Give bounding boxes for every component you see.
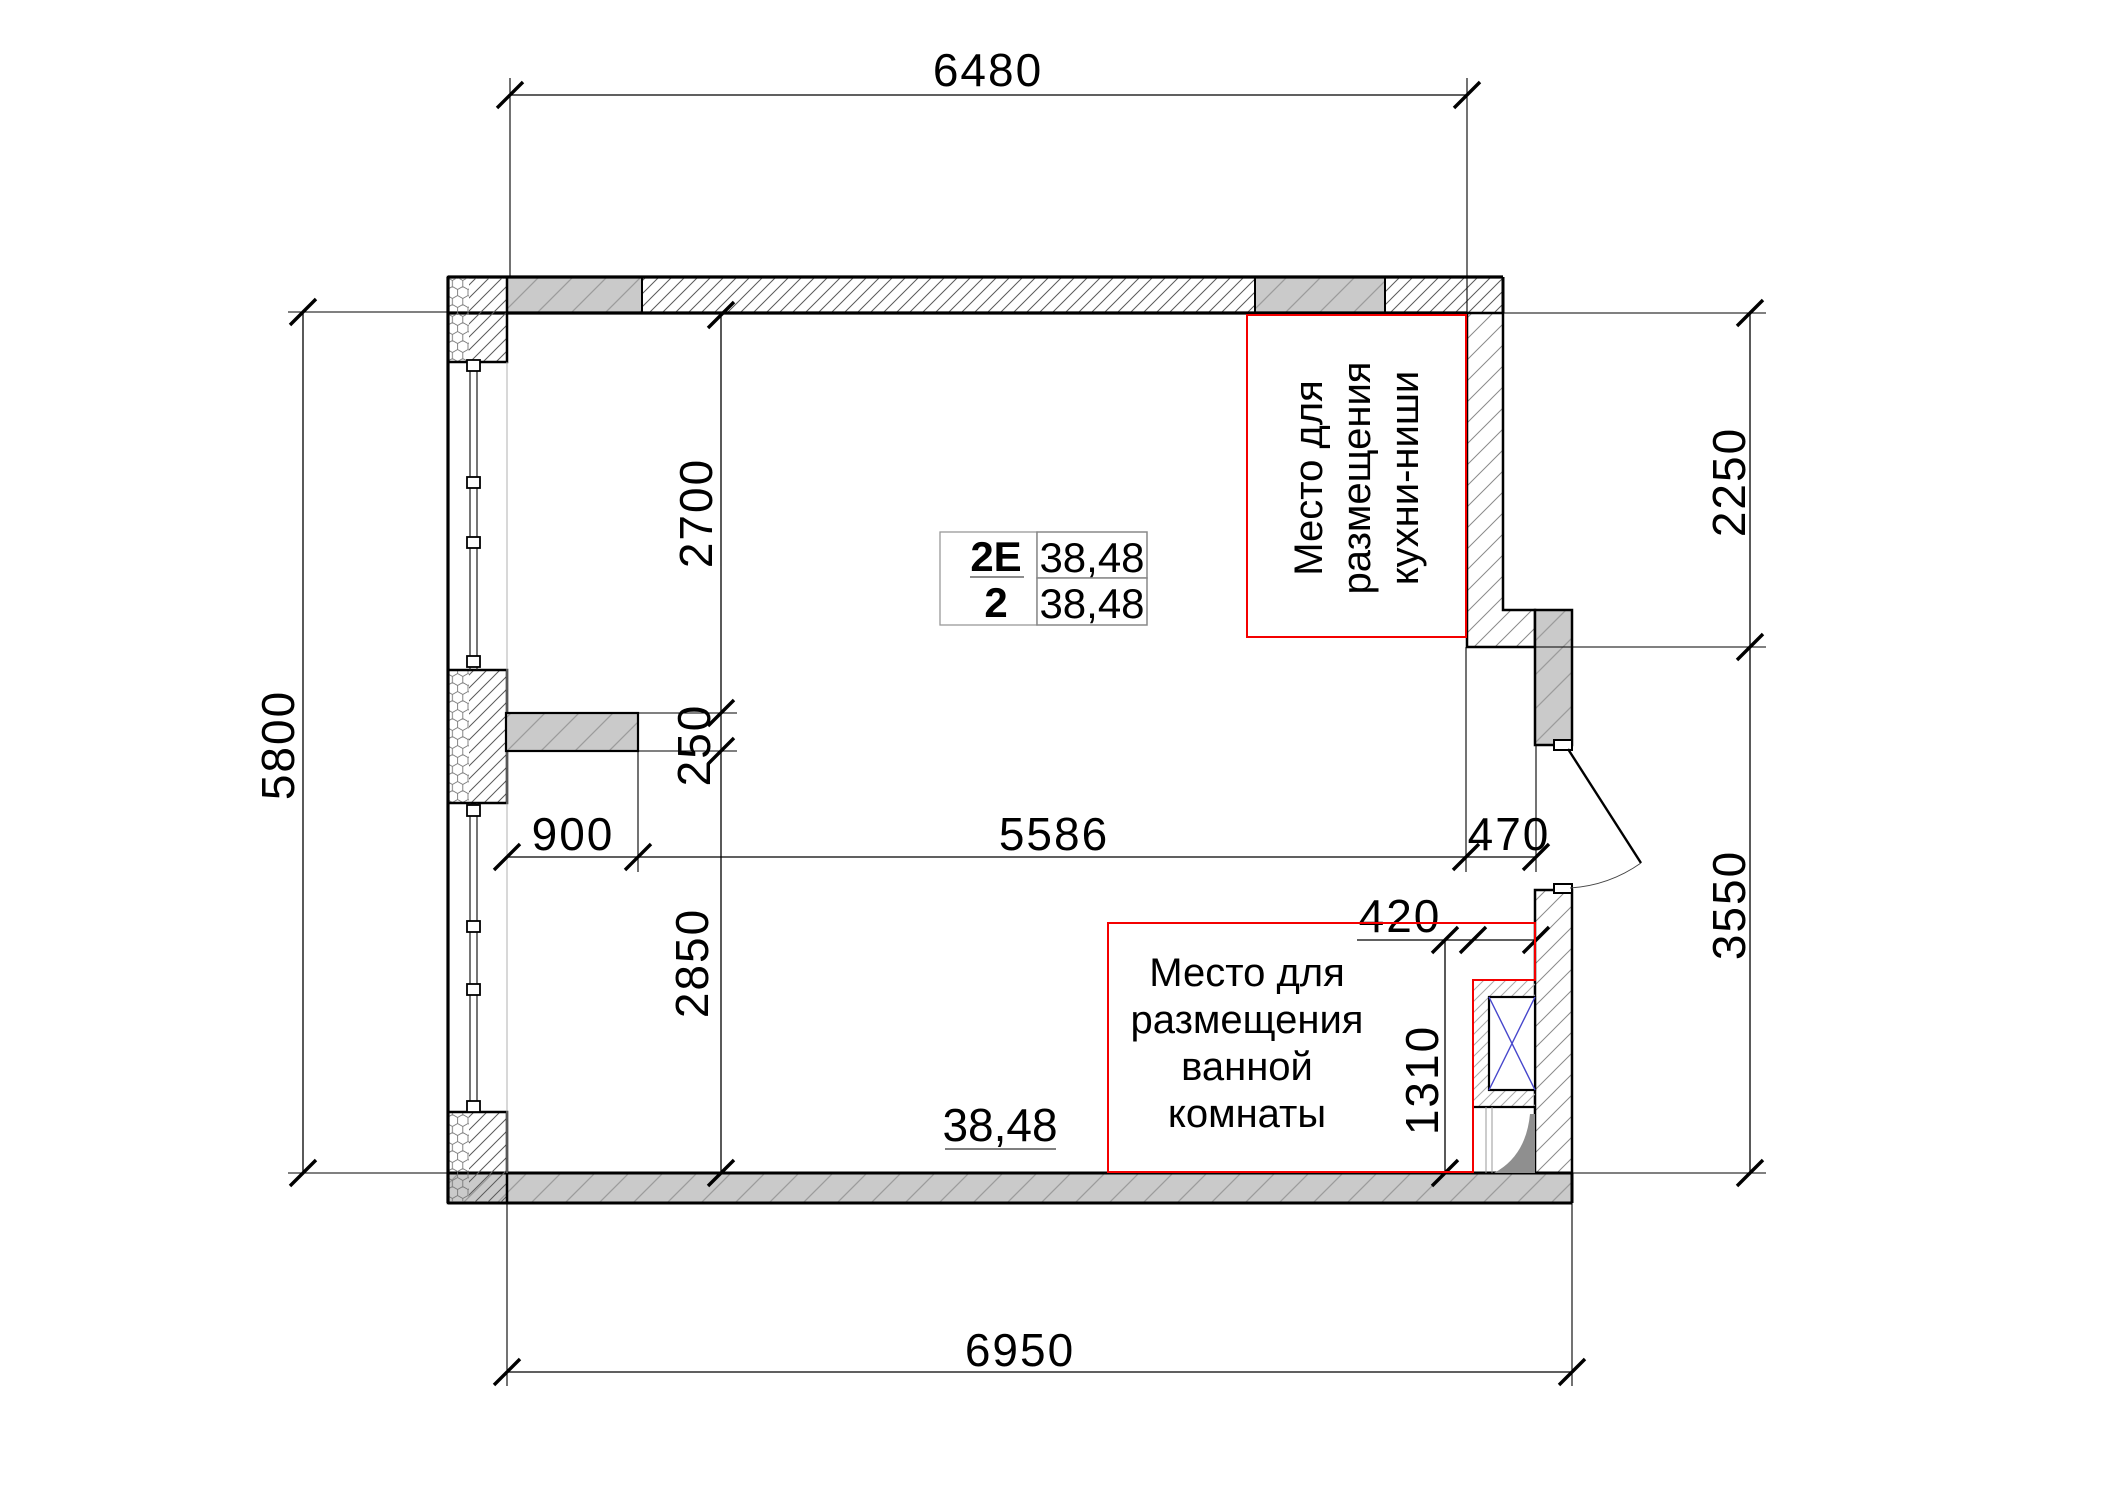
right-wall-body [1467, 313, 1535, 647]
unit-rooms-text: 2 [984, 579, 1007, 626]
top-wall-hatched-span [642, 277, 1255, 313]
dim-stub-length: 900 [532, 808, 615, 860]
left-pier-middle [448, 670, 507, 803]
door-jamb-top [1554, 740, 1572, 750]
dim-bath-duct-height: 1310 [1396, 1025, 1448, 1135]
door-pier [1535, 610, 1572, 750]
dim-pier-width: 470 [1468, 808, 1551, 860]
dim-stub-thickness: 250 [668, 704, 720, 787]
room-area-text: 38,48 [942, 1099, 1057, 1151]
kitchen-zone-label-line2: размещения [1335, 362, 1379, 595]
floor-plan: 6480 6950 5800 2250 3550 2700 250 2850 9… [0, 0, 2105, 1488]
area-living-text: 38,48 [1039, 580, 1144, 627]
masonry-hatch [469, 1112, 507, 1203]
top-wall-gray-block-right [1255, 277, 1385, 313]
door-jamb-bottom [1554, 884, 1572, 893]
door-swing-arc [1570, 863, 1641, 888]
door-leaf [1568, 749, 1641, 863]
bath-zone: Место для размещения ванной комнаты [1108, 923, 1535, 1172]
dim-room-width: 5586 [999, 808, 1109, 860]
masonry-hatch [469, 670, 507, 803]
stub-partition-wall [506, 713, 638, 751]
right-wall [1467, 277, 1535, 647]
left-pier-bottom [448, 1112, 507, 1203]
floor-plan-drawing: 6480 6950 5800 2250 3550 2700 250 2850 9… [0, 0, 2105, 1488]
dim-room-depth-lower: 2850 [666, 908, 718, 1018]
duct-opening-lines [1486, 1107, 1492, 1173]
vent-duct [1473, 980, 1535, 1173]
kitchen-zone: Место для размещения кухни-ниши [1247, 315, 1466, 637]
insulation-hatch [448, 670, 469, 803]
bath-zone-label-line2: размещения [1131, 998, 1364, 1042]
top-wall [448, 277, 1503, 313]
bath-zone-label-line3: ванной [1181, 1045, 1313, 1089]
bottom-wall-body [448, 1173, 1572, 1203]
area-total-text: 38,48 [1039, 534, 1144, 581]
kitchen-zone-label-line1: Место для [1287, 380, 1331, 576]
entrance-door [1568, 749, 1641, 888]
left-wall [448, 277, 507, 1203]
unit-label-table: 2E 2 38,48 38,48 [940, 532, 1147, 627]
dim-top-width: 6480 [933, 44, 1043, 96]
unit-type-text: 2E [970, 533, 1021, 580]
room-area: 38,48 [942, 1099, 1057, 1151]
dim-left-height: 5800 [252, 690, 304, 800]
bath-zone-label-line4: комнаты [1168, 1092, 1326, 1136]
bathroom-wall-body [1535, 890, 1572, 1173]
dim-right-upper: 2250 [1703, 427, 1755, 537]
kitchen-zone-label-line3: кухни-ниши [1383, 371, 1427, 586]
left-pier-top [448, 277, 507, 362]
top-wall-gray-block-left [507, 277, 642, 313]
dim-bath-offset: 420 [1359, 890, 1442, 942]
dim-bottom-width: 6950 [965, 1324, 1075, 1376]
dim-room-depth-upper: 2700 [670, 458, 722, 568]
masonry-hatch [469, 277, 507, 362]
bottom-wall [448, 1173, 1572, 1203]
bathroom-wall [1535, 884, 1572, 1173]
corner-fill-shape [1494, 1114, 1535, 1173]
bath-zone-label-line1: Место для [1149, 951, 1345, 995]
insulation-hatch [448, 1112, 469, 1203]
gray-pier [1535, 610, 1572, 745]
dim-right-lower: 3550 [1703, 850, 1755, 960]
insulation-hatch [448, 277, 469, 362]
top-wall-hatched-corner [1385, 277, 1503, 313]
